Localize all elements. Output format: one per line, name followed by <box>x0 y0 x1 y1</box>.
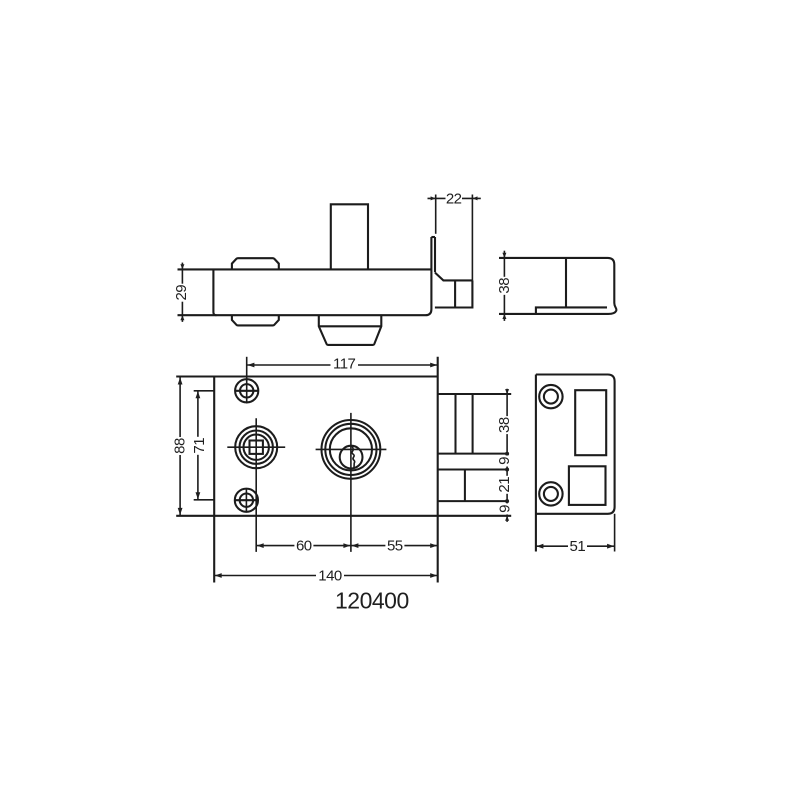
svg-text:71: 71 <box>191 438 208 454</box>
svg-text:9: 9 <box>496 505 513 513</box>
svg-text:38: 38 <box>496 417 513 433</box>
svg-text:9: 9 <box>496 457 513 465</box>
svg-text:88: 88 <box>171 438 188 454</box>
svg-text:55: 55 <box>387 538 403 555</box>
svg-text:117: 117 <box>333 355 356 372</box>
svg-text:22: 22 <box>446 191 462 208</box>
svg-text:140: 140 <box>318 568 342 585</box>
svg-text:21: 21 <box>496 477 513 493</box>
svg-text:29: 29 <box>173 285 190 301</box>
svg-text:60: 60 <box>296 538 312 555</box>
svg-text:51: 51 <box>570 538 586 555</box>
svg-text:120400: 120400 <box>335 588 409 614</box>
svg-text:38: 38 <box>496 278 513 294</box>
